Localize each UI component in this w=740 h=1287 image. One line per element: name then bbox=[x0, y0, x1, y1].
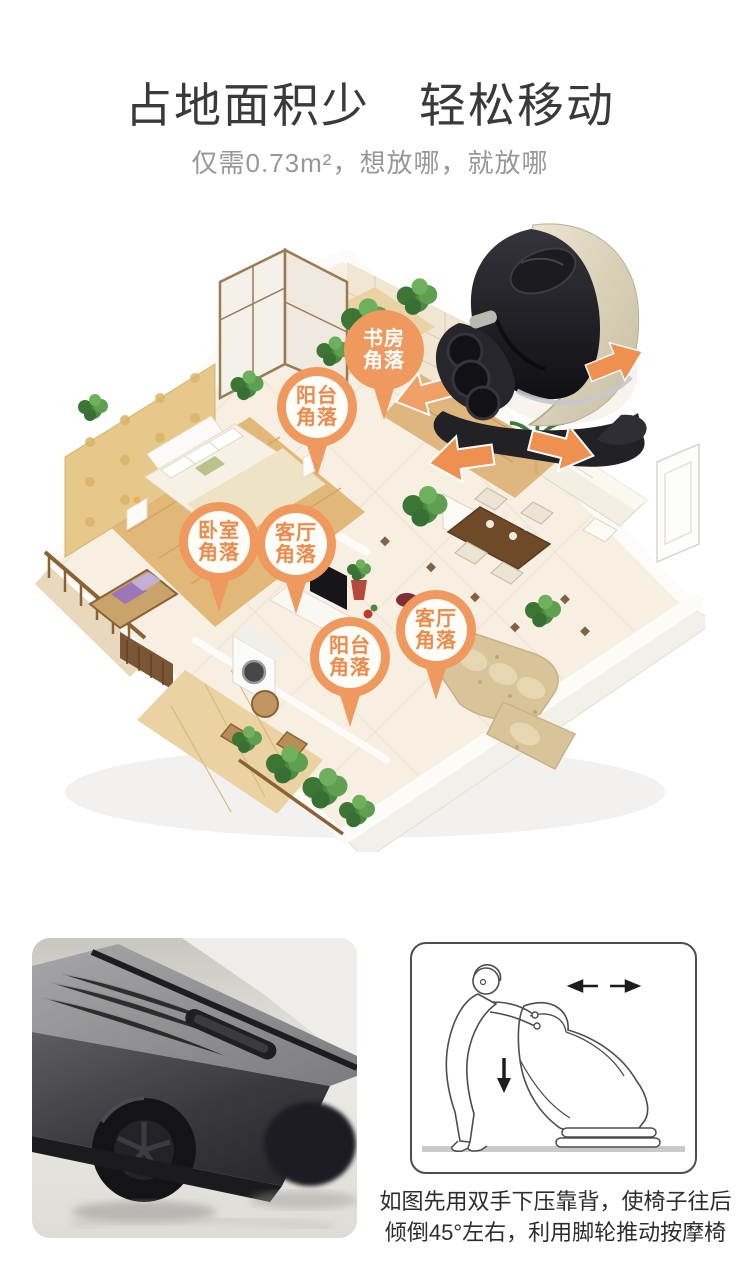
press-down-arrow-icon bbox=[497, 1058, 511, 1093]
pin-living-room-corner-right: 客厅角落 bbox=[396, 590, 476, 720]
tilt-instruction-diagram bbox=[410, 942, 697, 1174]
page-subtitle: 仅需0.73m²，想放哪，就放哪 bbox=[0, 147, 740, 179]
page-title: 占地面积少 轻松移动 bbox=[0, 80, 740, 132]
pin-balloon: 阳台角落 bbox=[310, 617, 390, 697]
pin-living-room-corner-left: 客厅角落 bbox=[256, 504, 336, 634]
apartment-scene: 书房角落 阳台角落 卧室角落 客厅角落 阳台角落 bbox=[0, 200, 740, 880]
pin-balloon: 阳台角落 bbox=[277, 367, 357, 447]
pin-balloon: 客厅角落 bbox=[256, 504, 336, 584]
slide-arrows-icon bbox=[570, 981, 638, 991]
pin-bedroom-corner: 卧室角落 bbox=[179, 502, 259, 632]
pin-balcony-corner-lower: 阳台角落 bbox=[310, 617, 390, 747]
move-arrow-left-down-icon bbox=[425, 428, 495, 485]
pin-balcony-corner-upper: 阳台角落 bbox=[277, 367, 357, 497]
pin-balloon: 卧室角落 bbox=[179, 502, 259, 582]
pin-balloon: 客厅角落 bbox=[396, 590, 476, 670]
instruction-caption: 如图先用双手下压靠背，使椅子往后 倾倒45°左右，利用脚轮推动按摩椅 bbox=[373, 1186, 738, 1248]
caster-wheel-photo bbox=[32, 938, 357, 1238]
product-page: 占地面积少 轻松移动 仅需0.73m²，想放哪，就放哪 bbox=[0, 0, 740, 1287]
